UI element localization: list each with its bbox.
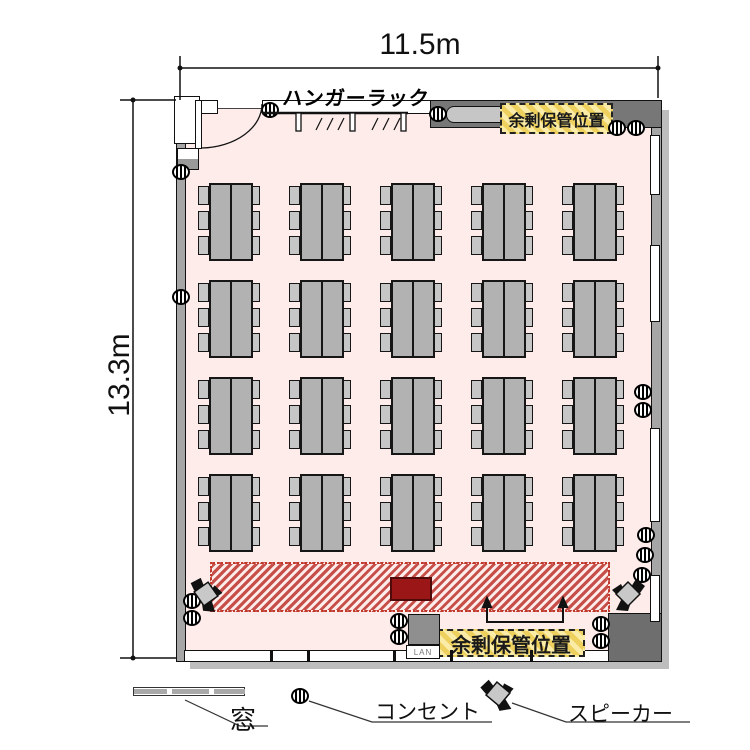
hanger-rack-label: ハンガーラック xyxy=(282,82,435,106)
speaker-icon xyxy=(480,678,516,713)
window-glass-segment xyxy=(214,689,245,694)
legend-window-icon xyxy=(133,687,245,696)
window-glass-segment xyxy=(134,689,167,694)
floor-plan: 余剰保管位置 余剰保管位置 LAN xyxy=(0,0,750,750)
speaker-icon xyxy=(612,579,645,611)
dimension-height-label: 13.3m xyxy=(103,320,143,430)
hanger-rack xyxy=(262,113,408,131)
door-swing-arc xyxy=(202,104,262,148)
legend-speaker-label: スピーカー xyxy=(568,698,673,728)
legend-window-label: 窓 xyxy=(230,700,256,737)
window-glass-segment xyxy=(172,689,209,694)
legend-outlet-icon xyxy=(291,688,309,704)
speaker-icon xyxy=(186,576,224,613)
stage-bracket xyxy=(483,598,567,622)
dimension-width-label: 11.5m xyxy=(355,28,485,64)
legend-outlet-label: コンセント xyxy=(375,696,480,726)
